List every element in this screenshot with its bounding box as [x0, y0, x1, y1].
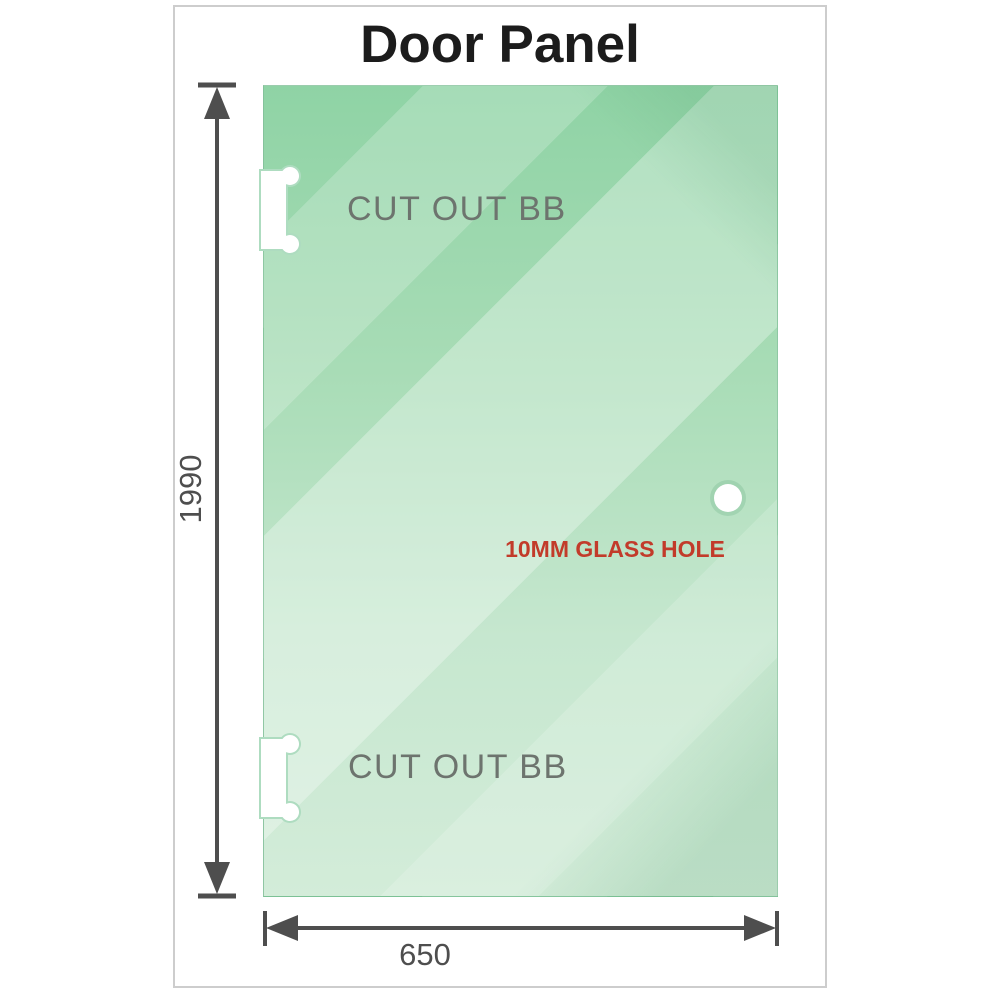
width-dimension-label: 650 [355, 937, 495, 973]
hinge-cutout-top [263, 165, 305, 255]
drawing-stage: Door Panel CUT OUT BB CUT OUT BB 10MM GL… [0, 0, 1000, 1000]
glass-hole [714, 484, 742, 512]
glass-hole-label: 10MM GLASS HOLE [505, 536, 725, 563]
hinge-cutout-bottom [263, 733, 305, 823]
page-title: Door Panel [173, 14, 827, 75]
cutout-label-bottom: CUT OUT BB [348, 748, 568, 787]
hinge-cutout-bottom-shape [260, 734, 300, 822]
hinge-cutout-top-shape [260, 166, 300, 254]
height-dimension-label: 1990 [173, 429, 205, 549]
cutout-label-top: CUT OUT BB [347, 190, 567, 229]
